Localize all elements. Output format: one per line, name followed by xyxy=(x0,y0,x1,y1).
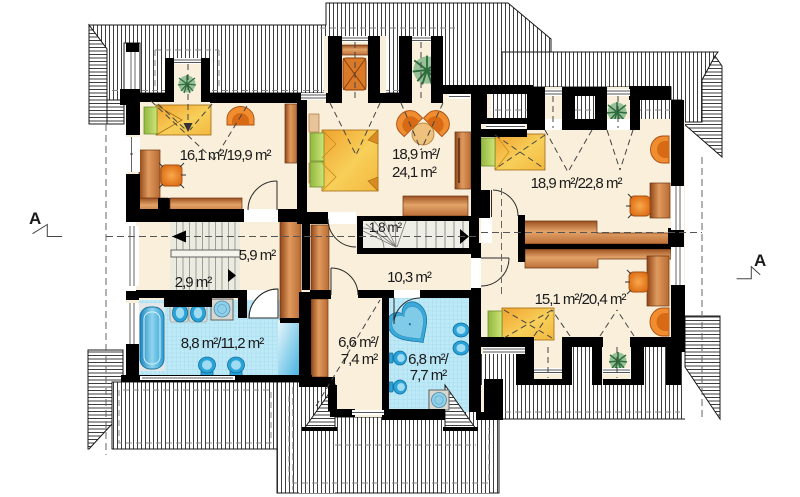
svg-text:15,1 m²/20,4 m²: 15,1 m²/20,4 m² xyxy=(535,291,627,308)
svg-text:1,8 m²: 1,8 m² xyxy=(369,220,403,235)
svg-text:7,7 m²: 7,7 m² xyxy=(410,367,448,384)
svg-text:18,9 m²/: 18,9 m²/ xyxy=(392,146,441,163)
svg-text:10,3 m²: 10,3 m² xyxy=(387,269,432,286)
svg-text:A: A xyxy=(754,251,766,270)
svg-text:24,1 m²: 24,1 m² xyxy=(392,164,437,181)
svg-text:6,8 m²/: 6,8 m²/ xyxy=(408,351,450,368)
svg-text:2,9 m²: 2,9 m² xyxy=(175,274,213,291)
svg-text:5,9 m²: 5,9 m² xyxy=(239,247,277,264)
svg-text:18,9 m²/22,8 m²: 18,9 m²/22,8 m² xyxy=(531,175,623,192)
svg-text:6,6 m²/: 6,6 m²/ xyxy=(338,334,380,351)
svg-text:16,1 m²/19,9 m²: 16,1 m²/19,9 m² xyxy=(180,147,272,164)
svg-text:8,8 m²/11,2 m²: 8,8 m²/11,2 m² xyxy=(181,335,264,352)
svg-text:7,4 m²: 7,4 m² xyxy=(341,351,379,368)
svg-text:A: A xyxy=(29,209,41,228)
